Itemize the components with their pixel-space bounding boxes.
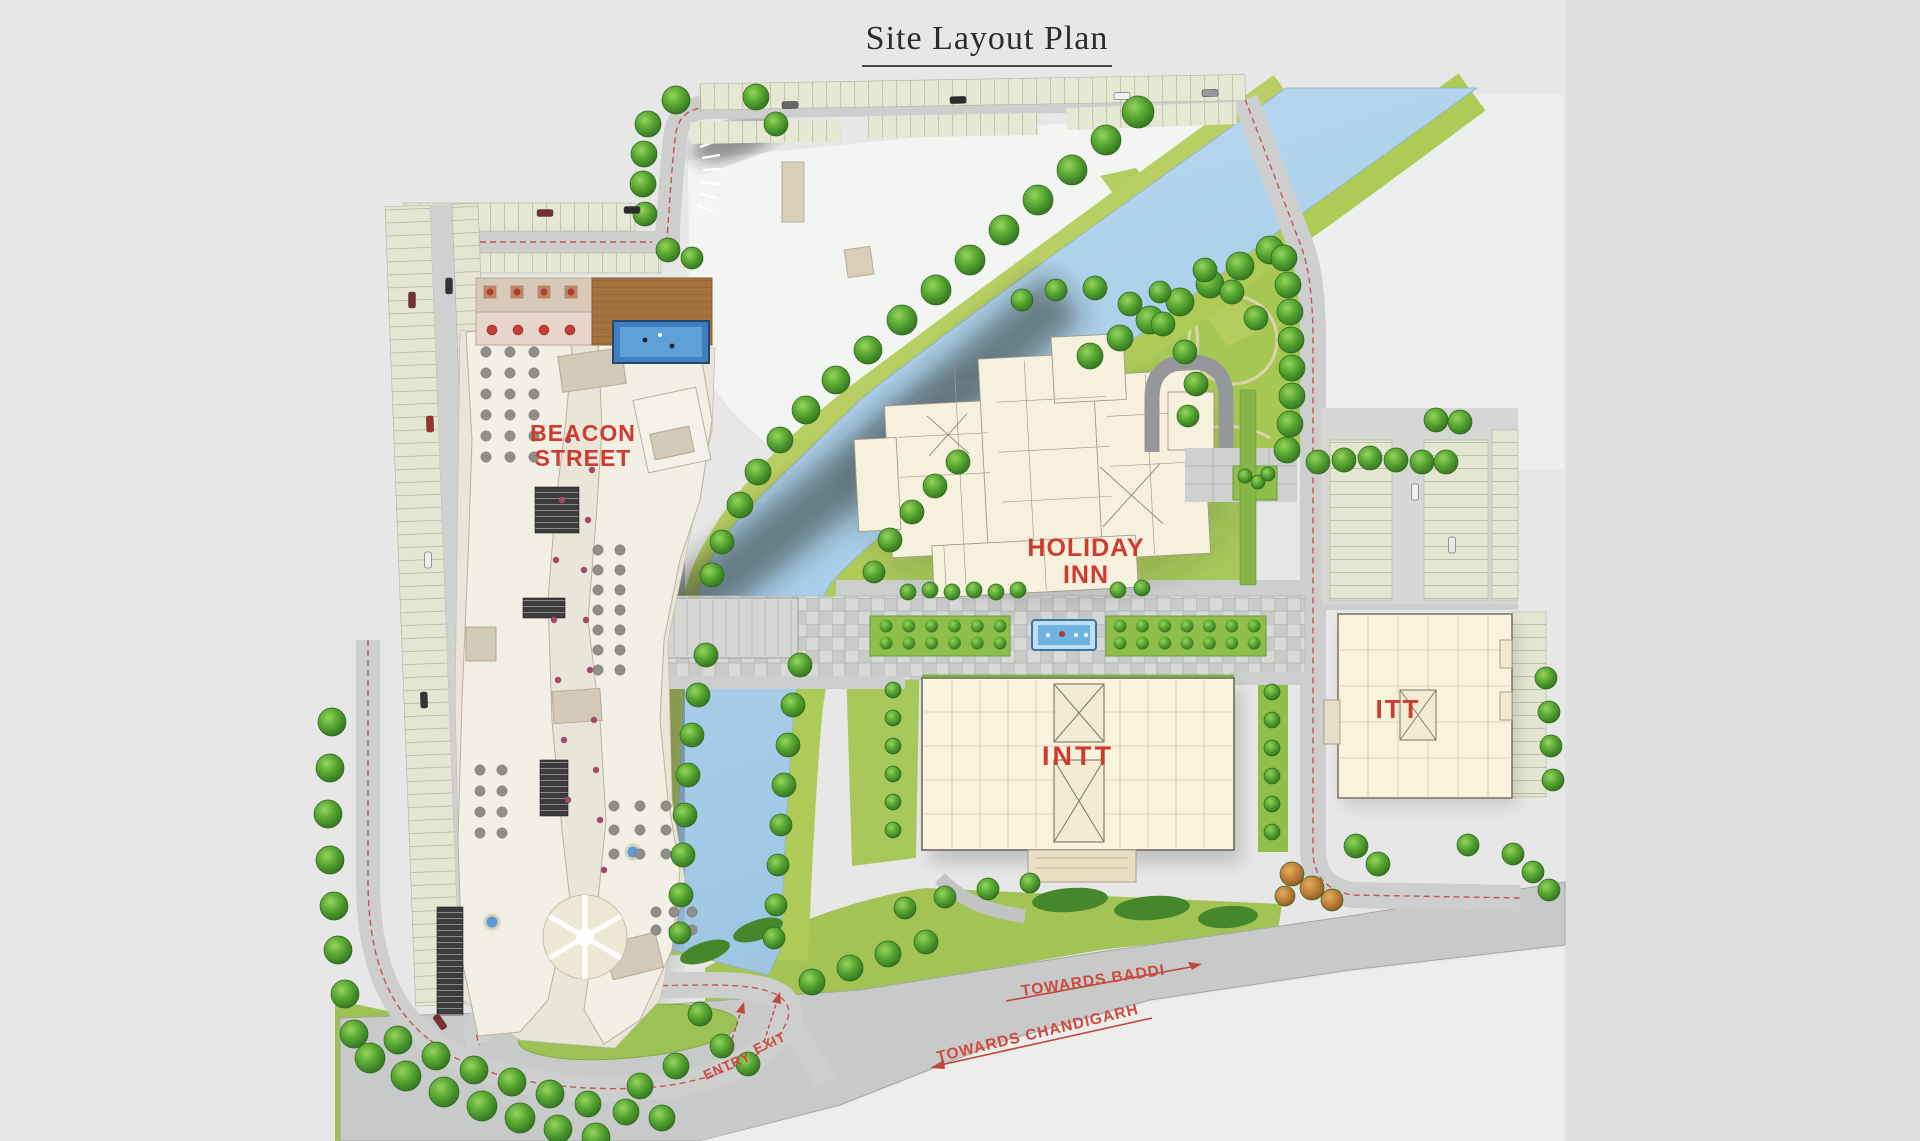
fountain-west [485, 915, 499, 929]
building-label-beacon-line2: STREET [535, 445, 632, 471]
building-label-itt: ITT [1376, 694, 1421, 724]
building-label-holiday-line1: HOLIDAY [1027, 534, 1144, 562]
site-plan-drawing: BEACON STREET HOLIDAY INN INTT ITT TOWAR… [0, 0, 1920, 1141]
site-plan-canvas: Site Layout Plan [0, 0, 1920, 1141]
building-label-holiday-line2: INN [1063, 561, 1109, 589]
background-right-strip [1565, 0, 1920, 1141]
building-label-intt: INTT [1042, 741, 1114, 771]
intt-canopy [1028, 850, 1136, 882]
page-title: Site Layout Plan [862, 20, 1112, 67]
building-label-beacon-line1: BEACON [530, 420, 636, 446]
